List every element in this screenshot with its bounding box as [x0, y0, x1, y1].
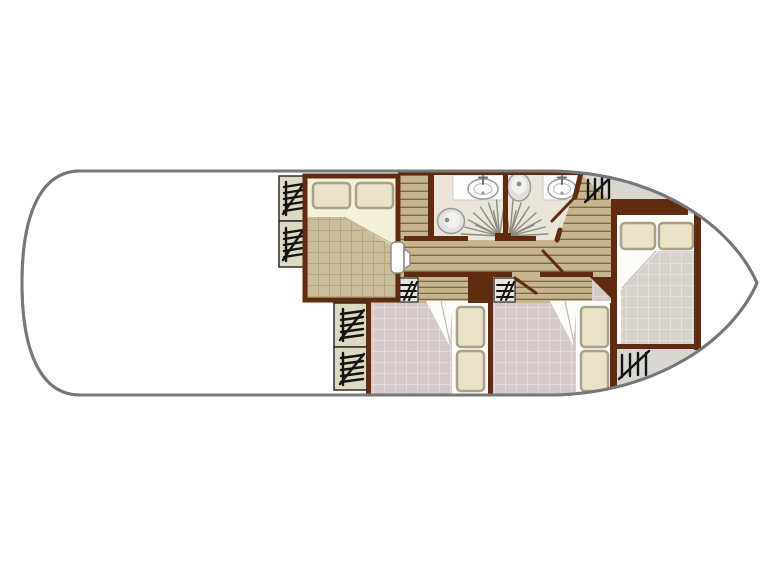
pillow	[659, 223, 693, 249]
pillow	[581, 307, 608, 347]
pillow	[457, 307, 484, 347]
toilet-icon	[508, 173, 531, 201]
locker	[494, 278, 515, 302]
cabin-shelf-planks	[514, 277, 592, 303]
wall-between-bathrooms	[503, 174, 508, 240]
locker-icon	[400, 282, 417, 300]
pillow	[621, 223, 655, 249]
wall-stairs-bathroom	[428, 174, 434, 240]
rear-double-cabin	[615, 214, 696, 347]
companionway-stairs-front	[400, 174, 428, 240]
boat-floor-plan-page	[0, 0, 768, 576]
corridor	[400, 240, 612, 277]
wardrobe	[334, 303, 368, 347]
pillow	[457, 351, 484, 391]
pillow	[356, 183, 393, 208]
wardrobe	[279, 176, 306, 221]
cabin-shelf-planks	[417, 277, 470, 303]
toilet-icon	[438, 209, 465, 234]
boat-floor-plan	[0, 0, 768, 576]
front-double-cabin	[306, 177, 396, 299]
locker-icon	[497, 282, 514, 300]
wardrobe	[279, 221, 306, 267]
pillow	[581, 351, 608, 391]
wall-between-twin-cabins	[488, 277, 493, 395]
pillow	[313, 183, 350, 208]
bathroom-port	[434, 174, 505, 240]
wardrobe	[334, 347, 368, 390]
